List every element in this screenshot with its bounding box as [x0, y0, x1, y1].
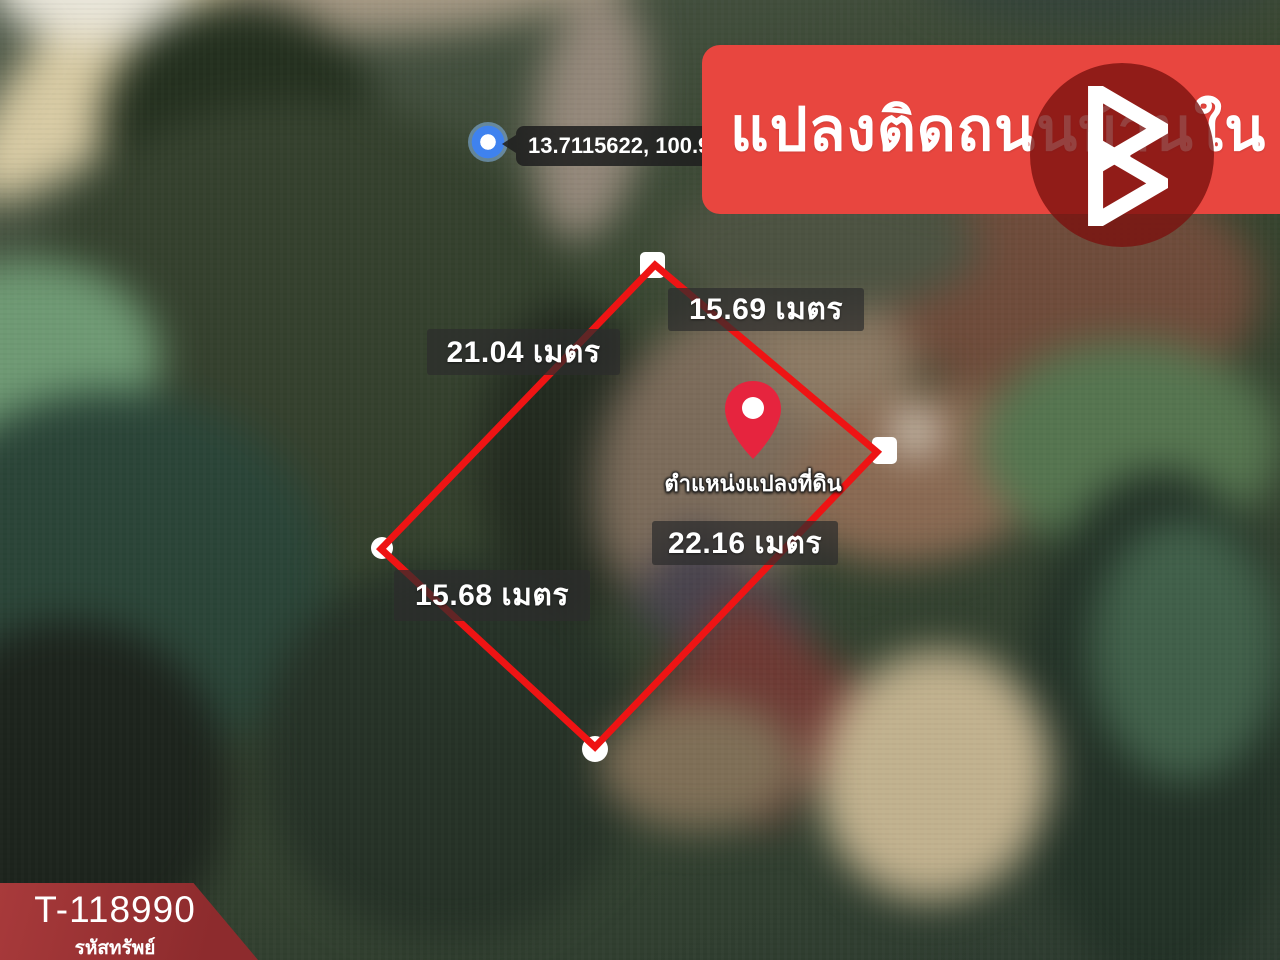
property-code-label: รหัสทรัพย์ — [0, 933, 230, 960]
measurement-label-lower-right: 22.16 เมตร — [652, 521, 838, 565]
pin-caption: ตำแหน่งแปลงที่ดิน — [630, 466, 876, 501]
measurement-label-top: 15.69 เมตร — [668, 288, 864, 331]
listing-image: 15.69 เมตร 21.04 เมตร 15.68 เมตร 22.16 เ… — [0, 0, 1280, 960]
property-code: T-118990 — [0, 889, 230, 931]
coordinates-tooltip: 13.7115622, 100.921 — [516, 126, 726, 166]
measurement-label-upper-left: 21.04 เมตร — [427, 329, 620, 375]
location-pin-icon — [725, 381, 781, 459]
tooltip-arrow — [502, 135, 516, 153]
measurement-label-lower-left: 15.68 เมตร — [394, 570, 590, 621]
brand-b-triangles-logo-icon — [1086, 86, 1168, 226]
